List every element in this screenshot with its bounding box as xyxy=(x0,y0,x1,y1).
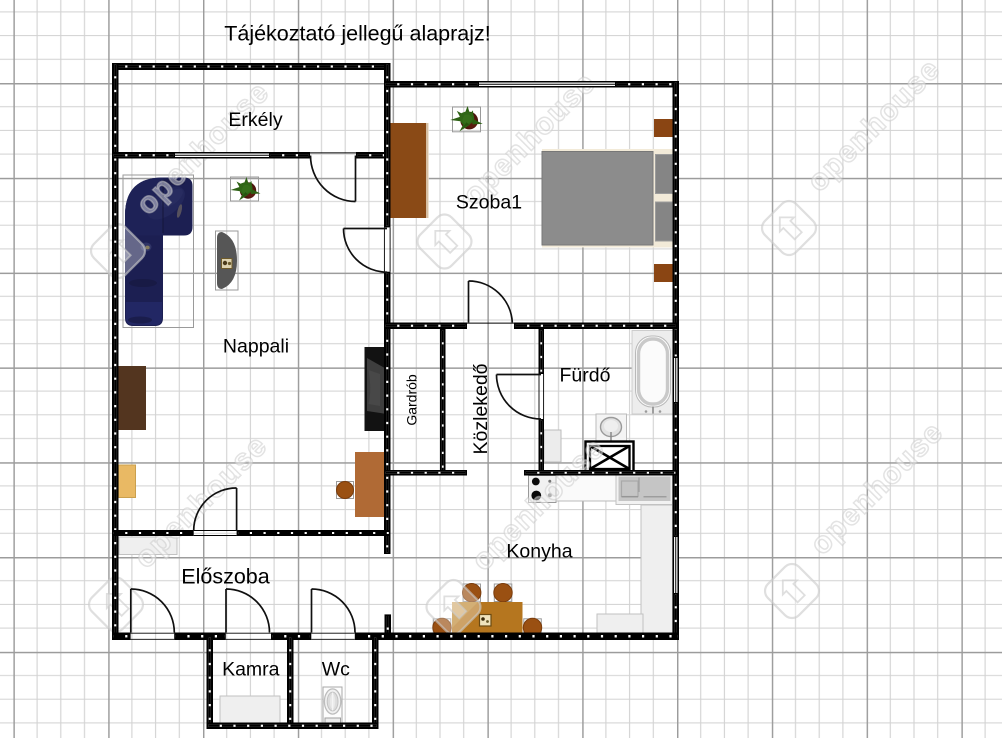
svg-text:Erkély: Erkély xyxy=(228,109,282,131)
svg-text:Nappali: Nappali xyxy=(223,336,289,358)
svg-text:Előszoba: Előszoba xyxy=(181,565,269,589)
svg-text:Szoba1: Szoba1 xyxy=(456,192,522,214)
svg-text:Közlekedő: Közlekedő xyxy=(470,363,492,454)
svg-text:Konyha: Konyha xyxy=(506,541,572,563)
svg-text:Kamra: Kamra xyxy=(222,658,280,680)
svg-text:Wc: Wc xyxy=(322,658,350,680)
svg-text:Fürdő: Fürdő xyxy=(560,365,611,387)
svg-text:Tájékoztató jellegű alaprajz!: Tájékoztató jellegű alaprajz! xyxy=(224,22,491,46)
svg-text:Gardrób: Gardrób xyxy=(404,374,420,426)
